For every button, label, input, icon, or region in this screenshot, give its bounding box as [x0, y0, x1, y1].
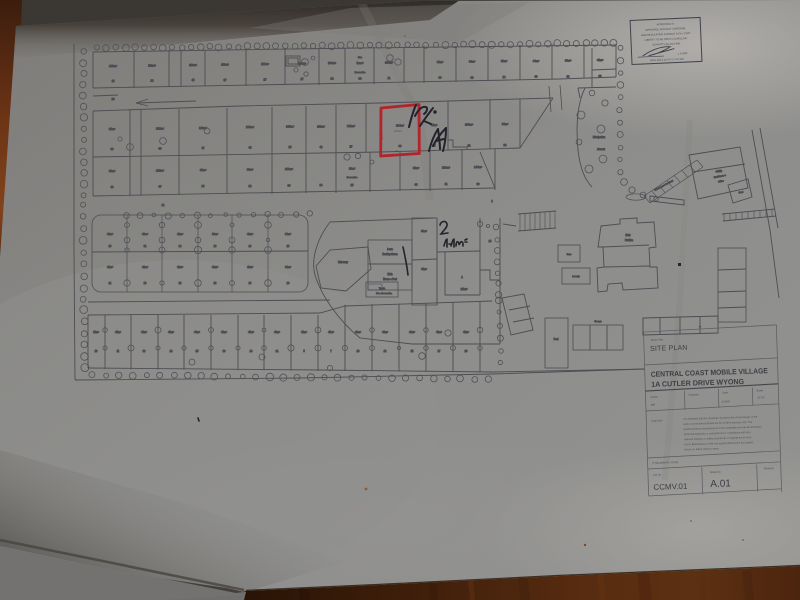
svg-text:Scale: Scale — [756, 388, 763, 392]
svg-text:41m²: 41m² — [177, 265, 183, 269]
svg-text:36m²: 36m² — [285, 232, 291, 236]
svg-text:43m²: 43m² — [409, 331, 415, 334]
svg-text:101m²: 101m² — [156, 126, 164, 130]
svg-text:Checked: Checked — [688, 392, 699, 396]
svg-text:104m²: 104m² — [394, 129, 402, 133]
svg-text:Pavilion: Pavilion — [625, 240, 634, 242]
svg-text:13m: 13m — [358, 57, 362, 59]
svg-text:23: 23 — [111, 97, 115, 101]
svg-text:1 JUN08: 1 JUN08 — [678, 52, 688, 55]
svg-text:85m²: 85m² — [200, 168, 206, 172]
svg-text:90m²: 90m² — [247, 168, 253, 172]
svg-text:36m²: 36m² — [285, 265, 291, 269]
svg-text:Dissipation: Dissipation — [593, 136, 606, 139]
svg-text:95m²: 95m² — [109, 169, 115, 173]
svg-text:Driveway: Driveway — [338, 261, 349, 264]
svg-text:44m²: 44m² — [382, 331, 388, 334]
svg-text:46m²: 46m² — [168, 331, 174, 334]
svg-text:40m²: 40m² — [142, 265, 148, 269]
svg-text:46m²: 46m² — [221, 331, 227, 334]
svg-text:41m²: 41m² — [177, 232, 183, 236]
svg-text:Sheet Title: Sheet Title — [651, 337, 664, 341]
svg-text:16m²: 16m² — [349, 166, 355, 170]
svg-text:Recr²: Recr² — [357, 61, 364, 65]
svg-text:112m²: 112m² — [148, 63, 156, 67]
svg-text:63m²: 63m² — [565, 58, 571, 62]
svg-text:133m²: 133m² — [442, 166, 450, 170]
svg-text:47m²: 47m² — [141, 331, 147, 334]
svg-text:Drawn: Drawn — [650, 395, 658, 399]
svg-text:Crt + Recreation: Crt + Recreation — [376, 292, 393, 295]
svg-text:117m²: 117m² — [261, 62, 269, 66]
svg-text:Recreation: Recreation — [347, 176, 358, 179]
svg-text:Garage: Garage — [594, 320, 602, 323]
svg-text:88m²: 88m² — [437, 60, 443, 64]
svg-text:SITE PLAN: SITE PLAN — [650, 345, 688, 353]
svg-text:45m²: 45m² — [248, 331, 254, 334]
svg-text:Job No: Job No — [653, 473, 662, 477]
svg-text:47m²: 47m² — [274, 331, 280, 334]
svg-text:135m²: 135m² — [109, 64, 117, 68]
svg-text:40m²: 40m² — [142, 232, 148, 236]
svg-text:Herb: Herb — [626, 234, 632, 237]
svg-text:43m²: 43m² — [247, 265, 253, 269]
svg-text:131m²: 131m² — [347, 124, 355, 128]
svg-text:91m²: 91m² — [501, 59, 507, 63]
svg-text:Laundry: Laundry — [572, 276, 579, 278]
svg-text:1:XXX: 1:XXX — [722, 399, 730, 403]
svg-text:Bowling Green: Bowling Green — [382, 253, 398, 256]
svg-text:111m²: 111m² — [461, 288, 468, 291]
svg-text:104m²: 104m² — [328, 61, 336, 65]
svg-text:A.01: A.01 — [710, 478, 731, 490]
svg-text:40m²: 40m² — [597, 58, 603, 62]
svg-text:Recreation: Recreation — [355, 71, 366, 74]
svg-text:95m²: 95m² — [109, 127, 115, 131]
svg-text:101m²: 101m² — [156, 168, 164, 172]
svg-text:Sheet No: Sheet No — [710, 470, 721, 474]
svg-text:41m²: 41m² — [107, 265, 113, 269]
svg-text:Order Ref: Order Ref — [651, 419, 662, 422]
svg-text:104m²: 104m² — [396, 123, 404, 127]
svg-text:85m²: 85m² — [413, 166, 419, 170]
svg-text:36m²: 36m² — [212, 232, 218, 236]
svg-text:41m²: 41m² — [107, 232, 113, 236]
svg-text:103m²: 103m² — [199, 126, 207, 130]
svg-text:45m²: 45m² — [328, 331, 334, 334]
svg-text:45m²: 45m² — [463, 331, 469, 334]
svg-text:45m²: 45m² — [421, 268, 427, 271]
svg-text:43m²: 43m² — [247, 232, 253, 236]
svg-text:CCMV.01: CCMV.01 — [653, 482, 688, 492]
svg-text:84m²: 84m² — [469, 60, 475, 64]
svg-text:144m²: 144m² — [474, 165, 482, 169]
svg-text:36m²: 36m² — [212, 265, 218, 269]
svg-text:41m²: 41m² — [301, 331, 307, 334]
svg-text:118m²: 118m² — [189, 63, 197, 67]
svg-text:Revision: Revision — [764, 466, 775, 470]
svg-text:94m²: 94m² — [533, 59, 539, 63]
svg-text:House + Pool: House + Pool — [383, 279, 397, 281]
svg-text:Area xx: Area xx — [597, 148, 606, 151]
svg-text:RR: RR — [651, 403, 655, 407]
svg-text:Tennis: Tennis — [379, 288, 386, 290]
svg-text:Date: Date — [722, 390, 728, 394]
svg-text:Pool: Pool — [554, 338, 559, 341]
svg-text:N.T.S: N.T.S — [758, 395, 765, 399]
svg-text:105m²: 105m² — [286, 125, 294, 129]
svg-text:113m²: 113m² — [317, 124, 325, 128]
svg-text:113m²: 113m² — [221, 63, 229, 67]
svg-text:45m²: 45m² — [115, 331, 121, 334]
svg-text:103m²: 103m² — [246, 125, 254, 129]
svg-text:Lawn: Lawn — [387, 249, 393, 251]
svg-text:100m²: 100m² — [465, 123, 473, 127]
svg-text:86m²: 86m² — [502, 122, 508, 126]
svg-text:46m²: 46m² — [355, 331, 361, 334]
svg-text:100m²: 100m² — [285, 167, 293, 171]
svg-text:17m²: 17m² — [93, 331, 99, 334]
svg-text:Main: Main — [388, 274, 394, 276]
svg-text:46m²: 46m² — [436, 331, 442, 334]
svg-text:30m²: 30m² — [421, 230, 427, 233]
svg-text:44m²: 44m² — [194, 331, 200, 334]
